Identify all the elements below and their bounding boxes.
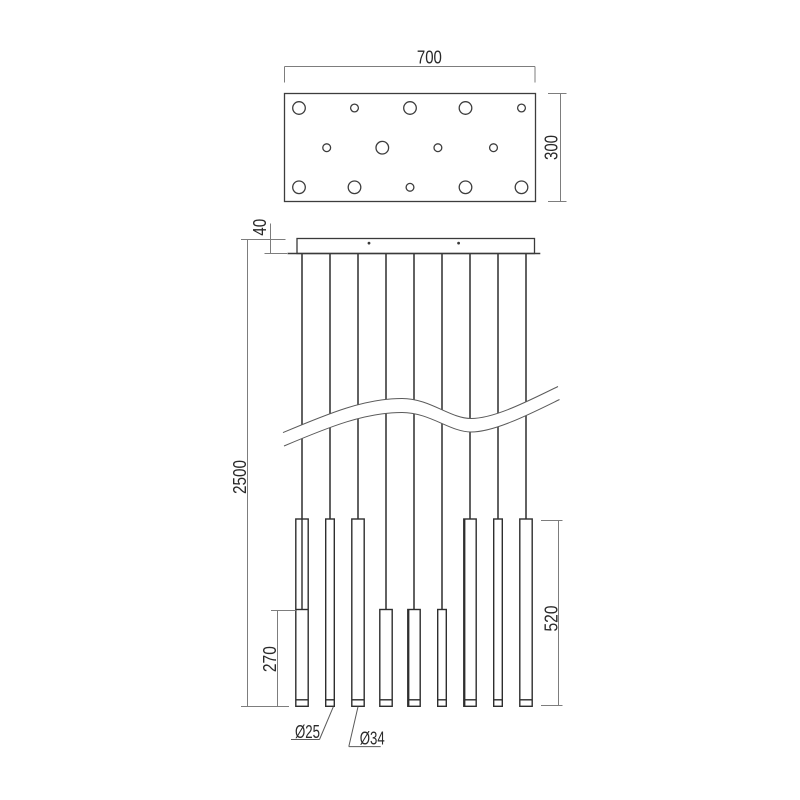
svg-text:40: 40 xyxy=(250,219,270,236)
svg-text:Ø34: Ø34 xyxy=(360,729,385,749)
svg-text:520: 520 xyxy=(542,606,562,632)
svg-text:700: 700 xyxy=(417,48,442,68)
svg-text:300: 300 xyxy=(542,135,562,160)
svg-text:2500: 2500 xyxy=(230,460,250,494)
svg-text:270: 270 xyxy=(260,646,280,672)
